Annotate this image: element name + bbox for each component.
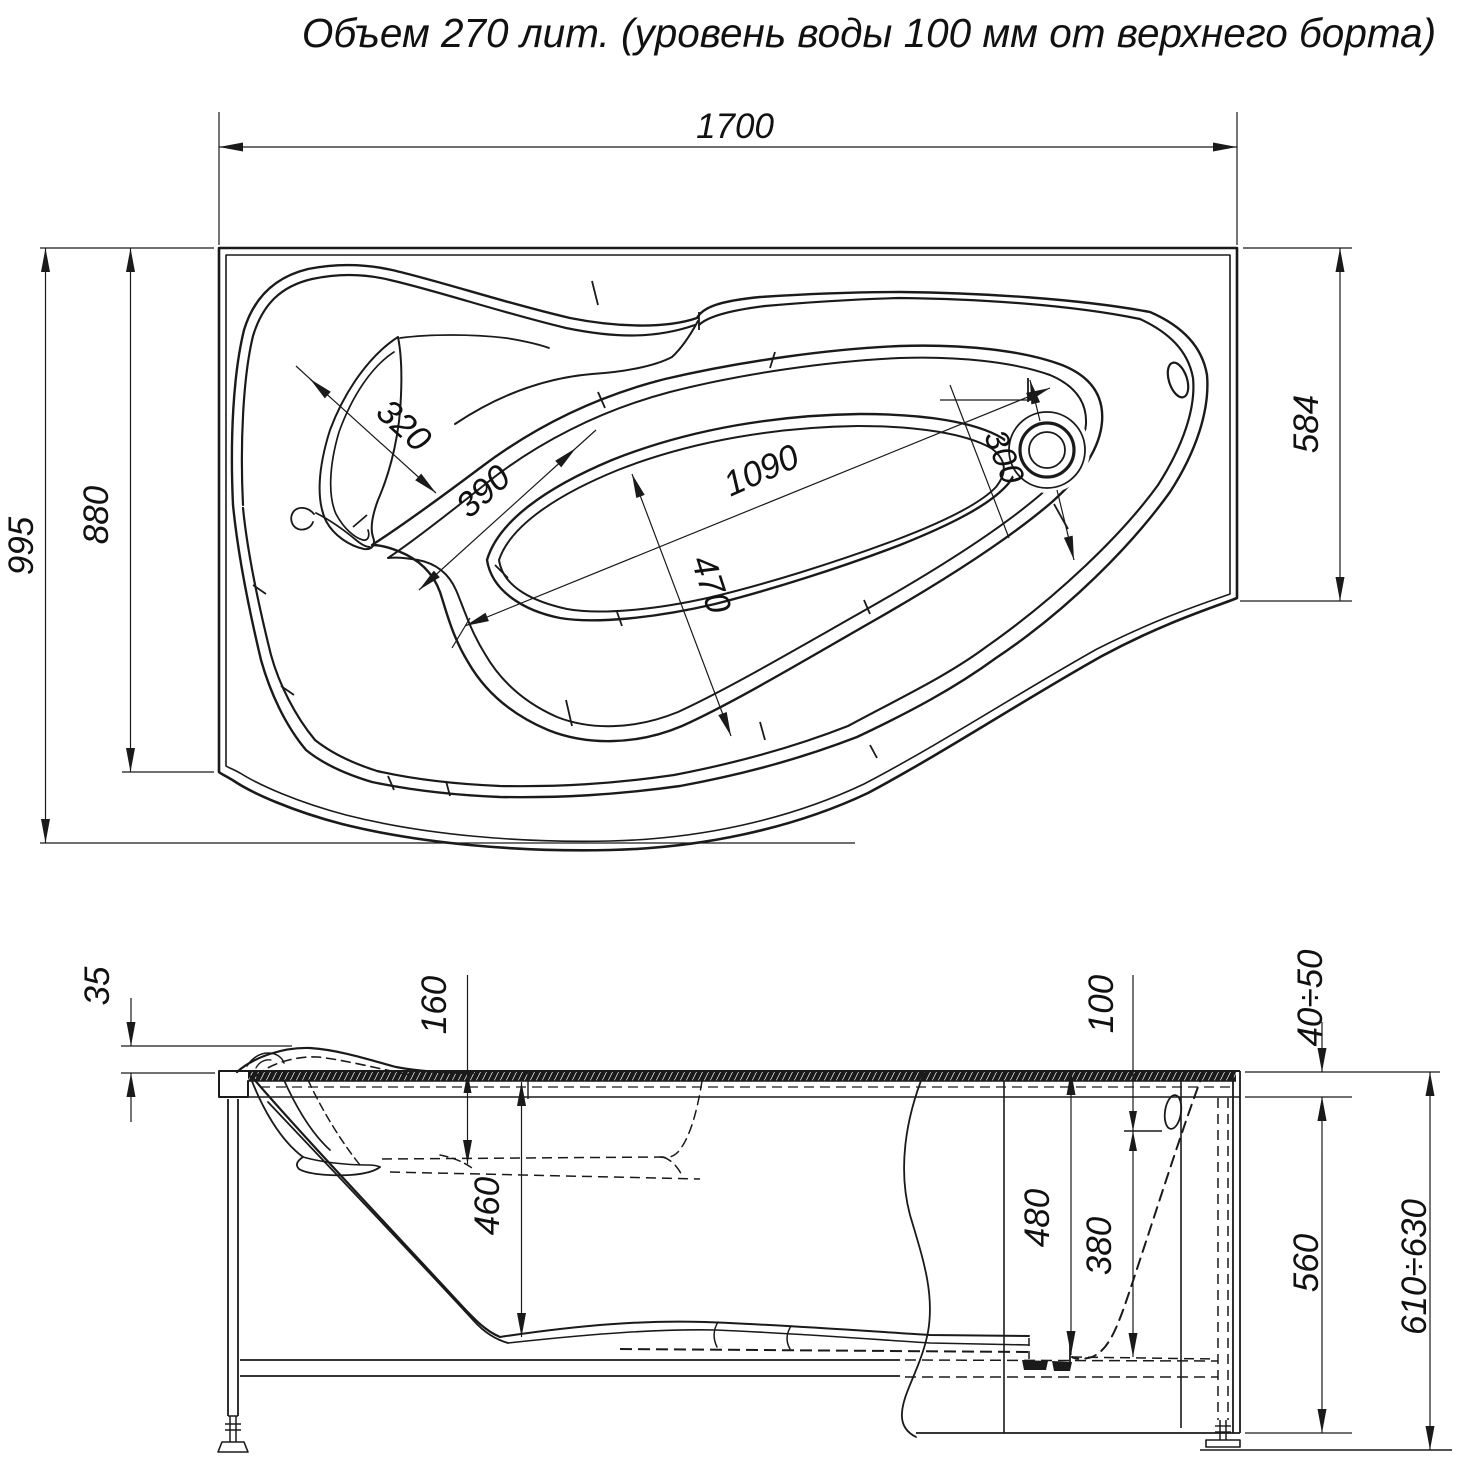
svg-text:35: 35	[78, 966, 117, 1005]
svg-text:610÷630: 610÷630	[1395, 1198, 1434, 1335]
svg-text:1700: 1700	[696, 107, 774, 146]
svg-text:40÷50: 40÷50	[1291, 949, 1330, 1047]
svg-text:380: 380	[1080, 1216, 1119, 1275]
svg-text:560: 560	[1287, 1233, 1326, 1292]
svg-text:995: 995	[2, 516, 41, 575]
svg-text:160: 160	[415, 975, 454, 1034]
svg-text:480: 480	[1018, 1188, 1057, 1247]
svg-text:880: 880	[77, 485, 116, 544]
svg-text:Объем 270 лит. (уровень воды 1: Объем 270 лит. (уровень воды 100 мм от в…	[302, 10, 1436, 56]
svg-text:100: 100	[1082, 974, 1121, 1033]
svg-text:584: 584	[1287, 395, 1326, 453]
svg-text:460: 460	[468, 1176, 507, 1235]
